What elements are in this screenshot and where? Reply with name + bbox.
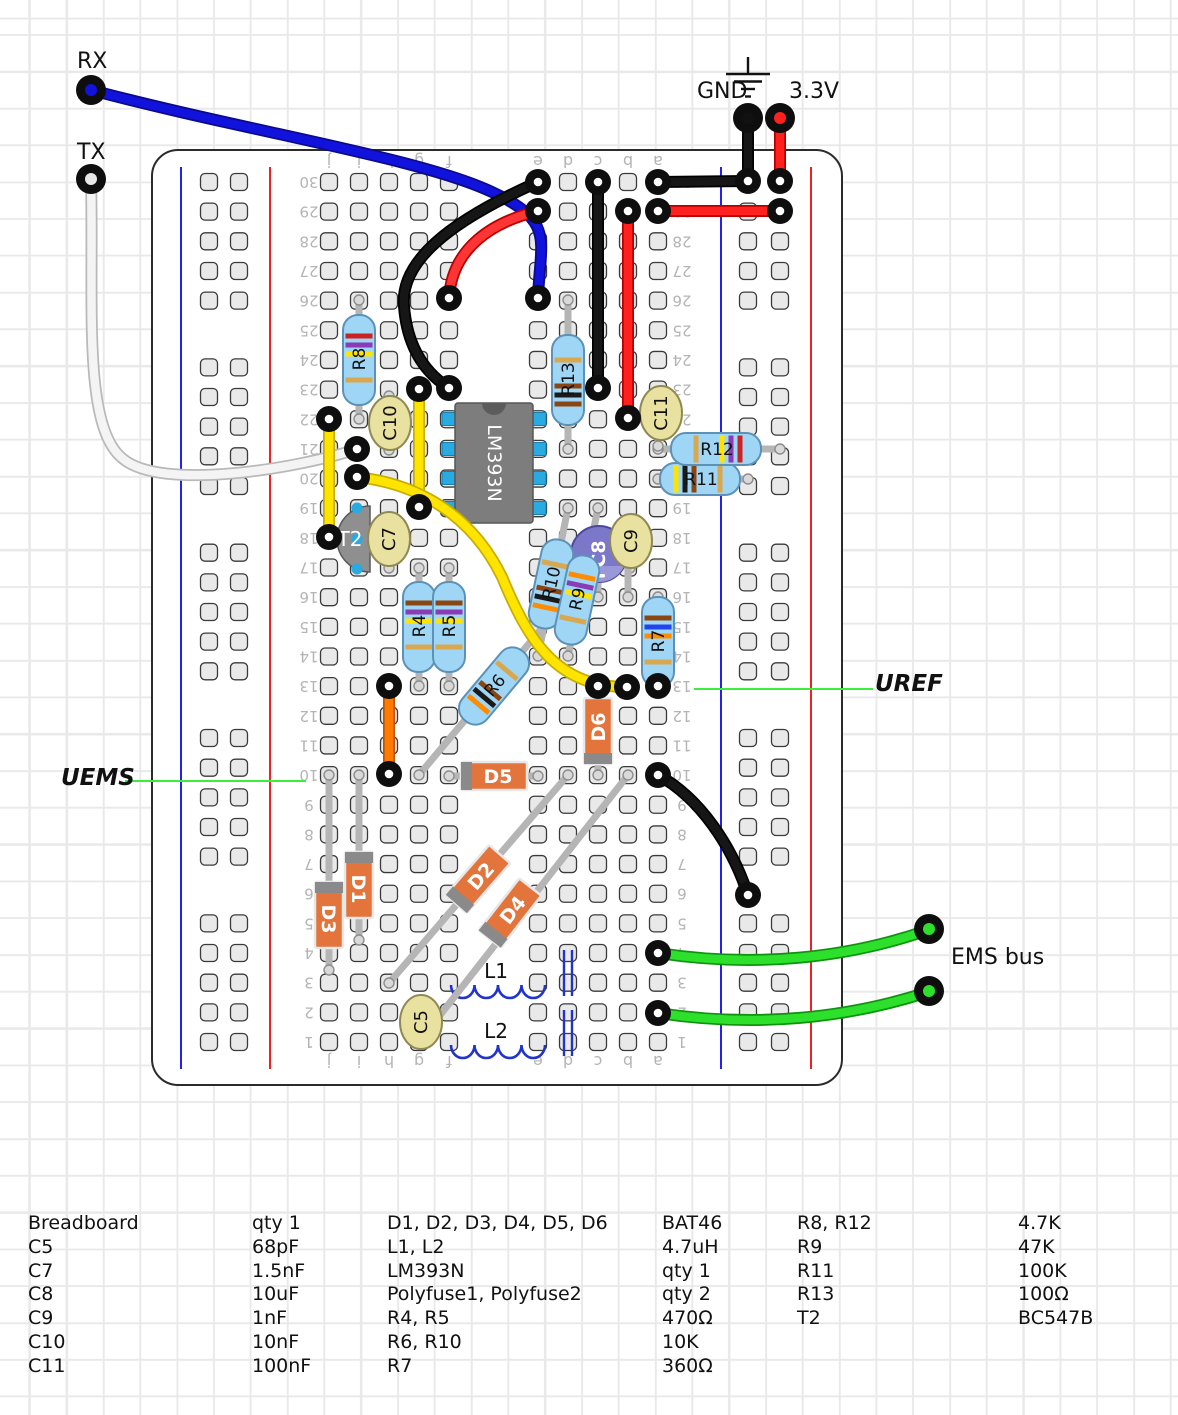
hole: [620, 915, 637, 932]
hole: [560, 915, 577, 932]
row-number-left: 20: [299, 470, 318, 488]
hole: [321, 381, 338, 398]
hole: [201, 945, 218, 962]
hole: [441, 1034, 458, 1051]
wire-end-ring: [436, 285, 462, 311]
parts-cell: BC547B: [1018, 1307, 1093, 1331]
row-number-left: 23: [299, 381, 318, 399]
hole: [201, 262, 218, 279]
row-number-left: 18: [299, 529, 318, 547]
parts-cell: qty 1: [662, 1260, 722, 1284]
hole: [321, 737, 338, 754]
parts-cell: 470Ω: [662, 1307, 722, 1331]
hole: [201, 1004, 218, 1021]
hole: [381, 203, 398, 220]
hole: [740, 262, 757, 279]
column-letter-top: b: [623, 152, 633, 171]
hole: [740, 818, 757, 835]
wire-end-ring: [436, 375, 462, 401]
hole: [560, 796, 577, 813]
row-number-left: 7: [304, 855, 314, 873]
component-c9: C9: [610, 514, 652, 568]
hole: [231, 233, 248, 250]
pin-33v: [765, 103, 795, 133]
svg-text:R11: R11: [684, 470, 717, 490]
hole: [351, 1004, 368, 1021]
row-number-left: 13: [299, 677, 318, 695]
hole: [351, 233, 368, 250]
wire-end-ring: [525, 285, 551, 311]
row-number-right: 27: [672, 262, 691, 280]
hole: [381, 915, 398, 932]
hole: [772, 544, 789, 561]
hole: [381, 262, 398, 279]
pin-rx: [76, 75, 106, 105]
wire-end-ring: [735, 882, 761, 908]
hole: [231, 1033, 248, 1050]
hole: [231, 262, 248, 279]
svg-text:R12: R12: [700, 440, 733, 460]
parts-list-column: D1, D2, D3, D4, D5, D6L1, L2LM393NPolyfu…: [387, 1212, 608, 1379]
component-d6: D6: [584, 698, 612, 764]
hole: [381, 1034, 398, 1051]
component-r12: R12: [671, 433, 761, 465]
hole: [590, 856, 607, 873]
hole: [201, 1033, 218, 1050]
parts-cell: 68pF: [252, 1236, 311, 1260]
hole: [740, 759, 757, 776]
row-number-right: 11: [672, 736, 691, 754]
hole: [351, 174, 368, 191]
hole: [231, 477, 248, 494]
svg-text:R13: R13: [559, 362, 579, 395]
hole: [650, 885, 667, 902]
hole: [772, 915, 789, 932]
hole: [620, 174, 637, 191]
parts-cell: [797, 1331, 872, 1355]
wire-gnd-row30: [658, 181, 748, 182]
hole: [772, 789, 789, 806]
parts-list-column: qty 168pF1.5nF10uF1nF10nF100nF: [252, 1212, 311, 1379]
row-number-right: 12: [672, 707, 691, 725]
hole: [201, 663, 218, 680]
hole: [772, 759, 789, 776]
hole: [381, 648, 398, 665]
svg-text:D6: D6: [588, 713, 610, 742]
hole: [560, 707, 577, 724]
hole: [381, 1004, 398, 1021]
hole: [231, 388, 248, 405]
hole: [590, 885, 607, 902]
wire-end-ring: [525, 169, 551, 195]
hole: [530, 322, 547, 339]
parts-cell: T2: [797, 1307, 872, 1331]
parts-cell: C7: [28, 1260, 139, 1284]
parts-cell: C10: [28, 1331, 139, 1355]
hole: [231, 848, 248, 865]
row-number-right: 5: [677, 914, 687, 932]
hole: [381, 174, 398, 191]
parts-list-column: 4.7K47K100K100ΩBC547B: [1018, 1212, 1093, 1379]
hole: [231, 603, 248, 620]
parts-cell: 1nF: [252, 1307, 311, 1331]
row-number-left: 4: [304, 944, 314, 962]
hole: [201, 203, 218, 220]
row-number-right: 3: [677, 974, 687, 992]
parts-cell: 100nF: [252, 1355, 311, 1379]
hole: [530, 1004, 547, 1021]
pin-tx: [76, 164, 106, 194]
row-number-left: 22: [299, 410, 318, 428]
hole: [351, 262, 368, 279]
hole: [381, 796, 398, 813]
hole: [530, 915, 547, 932]
column-letter-bottom: g: [414, 1052, 424, 1071]
hole: [772, 574, 789, 591]
hole: [772, 233, 789, 250]
hole: [650, 826, 667, 843]
hole: [740, 233, 757, 250]
pin-ems2: [914, 976, 944, 1006]
svg-text:C10: C10: [380, 405, 401, 440]
hole: [590, 826, 607, 843]
row-number-left: 17: [299, 559, 318, 577]
hole: [620, 707, 637, 724]
wire-end-ring: [585, 169, 611, 195]
label-l1: L1: [484, 959, 508, 983]
hole: [441, 796, 458, 813]
hole: [620, 470, 637, 487]
wire-end-ring: [645, 673, 671, 699]
svg-text:LM393N: LM393N: [483, 424, 505, 501]
row-number-right: 15: [672, 618, 691, 636]
svg-text:C5: C5: [411, 1010, 432, 1034]
hole: [620, 796, 637, 813]
hole: [201, 730, 218, 747]
hole: [231, 174, 248, 191]
wire-end-ring: [645, 940, 671, 966]
svg-text:D3: D3: [317, 905, 339, 934]
component-r4: R4: [403, 582, 435, 672]
column-letter-top: a: [653, 152, 663, 171]
hole: [231, 974, 248, 991]
parts-cell: qty 2: [662, 1283, 722, 1307]
hole: [772, 603, 789, 620]
hole: [381, 589, 398, 606]
hole: [231, 663, 248, 680]
hole: [321, 322, 338, 339]
fritzing-breadboard-diagram: jjiihhggffeeddccbbaa11223344556677889910…: [0, 0, 1178, 1415]
hole: [650, 500, 667, 517]
row-number-left: 3: [304, 974, 314, 992]
row-number-right: 18: [672, 529, 691, 547]
hole: [772, 818, 789, 835]
parts-cell: Breadboard: [28, 1212, 139, 1236]
parts-cell: 10nF: [252, 1331, 311, 1355]
hole: [231, 1004, 248, 1021]
parts-list-column: BreadboardC5C7C8C9C10C11: [28, 1212, 139, 1379]
hole: [530, 678, 547, 695]
hole: [231, 292, 248, 309]
hole: [321, 203, 338, 220]
wire-end-ring: [615, 198, 641, 224]
hole: [201, 448, 218, 465]
hole: [620, 440, 637, 457]
svg-text:R5: R5: [440, 615, 460, 638]
parts-cell: L1, L2: [387, 1236, 608, 1260]
hole: [351, 589, 368, 606]
component-r5: R5: [433, 582, 465, 672]
hole: [201, 233, 218, 250]
hole: [620, 885, 637, 902]
parts-list-column: R8, R12R9R11R13T2: [797, 1212, 872, 1379]
row-number-left: 19: [299, 499, 318, 517]
row-number-left: 5: [304, 914, 314, 932]
wire-end-ring: [615, 405, 641, 431]
hole: [231, 418, 248, 435]
hole: [650, 856, 667, 873]
parts-cell: 100Ω: [1018, 1283, 1093, 1307]
hole: [650, 292, 667, 309]
label-gnd: GND: [697, 79, 747, 104]
svg-text:C9: C9: [621, 529, 642, 553]
hole: [441, 826, 458, 843]
parts-cell: [797, 1355, 872, 1379]
hole: [321, 974, 338, 991]
column-letter-top: d: [563, 152, 573, 171]
svg-text:R8: R8: [350, 348, 370, 371]
hole: [772, 1033, 789, 1050]
hole: [411, 796, 428, 813]
hole: [560, 737, 577, 754]
hole: [530, 381, 547, 398]
hole: [590, 915, 607, 932]
component-d5: D5: [461, 762, 527, 790]
parts-cell: 360Ω: [662, 1355, 722, 1379]
row-number-left: 26: [299, 292, 318, 310]
hole: [351, 945, 368, 962]
hole: [772, 262, 789, 279]
hole: [590, 411, 607, 428]
hole: [411, 203, 428, 220]
hole: [620, 1004, 637, 1021]
hole: [231, 633, 248, 650]
component-c7: C7: [368, 512, 410, 566]
hole: [530, 529, 547, 546]
hole: [772, 418, 789, 435]
svg-text:C7: C7: [379, 527, 400, 551]
parts-cell: C5: [28, 1236, 139, 1260]
column-letter-top: c: [594, 152, 603, 171]
row-number-right: 17: [672, 559, 691, 577]
hole: [650, 974, 667, 991]
parts-cell: C11: [28, 1355, 139, 1379]
hole: [620, 618, 637, 635]
hole: [560, 1004, 577, 1021]
parts-cell: 100K: [1018, 1260, 1093, 1284]
hole: [201, 759, 218, 776]
row-number-left: 14: [299, 647, 318, 665]
hole: [411, 174, 428, 191]
hole: [321, 707, 338, 724]
hole: [231, 574, 248, 591]
hole: [231, 818, 248, 835]
hole: [650, 322, 667, 339]
label-3v3: 3.3V: [789, 79, 839, 104]
hole: [351, 648, 368, 665]
parts-cell: [1018, 1331, 1093, 1355]
hole: [530, 826, 547, 843]
hole: [411, 856, 428, 873]
hole: [560, 174, 577, 191]
row-number-right: 8: [677, 825, 687, 843]
svg-text:R7: R7: [649, 630, 669, 653]
hole: [411, 292, 428, 309]
hole: [590, 945, 607, 962]
component-r13: R13: [552, 335, 584, 425]
hole: [201, 359, 218, 376]
hole: [231, 789, 248, 806]
hole: [650, 707, 667, 724]
parts-cell: Polyfuse1, Polyfuse2: [387, 1283, 608, 1307]
hole: [772, 730, 789, 747]
wire-end-ring: [525, 198, 551, 224]
hole: [231, 544, 248, 561]
row-number-right: 28: [672, 232, 691, 250]
row-number-left: 8: [304, 825, 314, 843]
wire-end-ring: [645, 198, 671, 224]
hole: [411, 915, 428, 932]
parts-cell: 10K: [662, 1331, 722, 1355]
row-number-right: 14: [672, 647, 691, 665]
hole: [321, 1034, 338, 1051]
hole: [351, 618, 368, 635]
hole: [351, 203, 368, 220]
hole: [620, 856, 637, 873]
hole: [590, 974, 607, 991]
wire-end-ring: [376, 761, 402, 787]
hole: [231, 448, 248, 465]
svg-text:D5: D5: [484, 766, 513, 788]
hole: [620, 737, 637, 754]
hole: [620, 945, 637, 962]
row-number-right: 19: [672, 499, 691, 517]
hole: [772, 633, 789, 650]
wire-end-ring: [406, 376, 432, 402]
hole: [231, 915, 248, 932]
hole: [441, 322, 458, 339]
label-uref: UREF: [875, 671, 943, 697]
pin-ems1: [914, 914, 944, 944]
hole: [321, 618, 338, 635]
hole: [650, 559, 667, 576]
wire-end-ring: [767, 198, 793, 224]
hole: [650, 233, 667, 250]
hole: [740, 633, 757, 650]
pin-gnd: [733, 103, 763, 133]
hole: [740, 544, 757, 561]
hole: [351, 1034, 368, 1051]
label-ems-bus: EMS bus: [951, 945, 1044, 970]
hole: [381, 885, 398, 902]
row-number-left: 30: [299, 173, 318, 191]
hole: [740, 1033, 757, 1050]
parts-list-column: BAT464.7uHqty 1qty 2470Ω10K360Ω: [662, 1212, 722, 1379]
parts-cell: BAT46: [662, 1212, 722, 1236]
hole: [530, 351, 547, 368]
hole: [772, 292, 789, 309]
hole: [620, 826, 637, 843]
column-letter-top: e: [533, 152, 543, 171]
hole: [772, 359, 789, 376]
hole: [772, 477, 789, 494]
hole: [650, 262, 667, 279]
wire-end-ring: [767, 168, 793, 194]
hole: [590, 1034, 607, 1051]
component-d1: D1: [345, 852, 373, 918]
hole: [530, 945, 547, 962]
hole: [740, 574, 757, 591]
hole: [201, 418, 218, 435]
hole: [560, 974, 577, 991]
parts-cell: R8, R12: [797, 1212, 872, 1236]
hole: [740, 974, 757, 991]
hole: [620, 1034, 637, 1051]
hole: [740, 359, 757, 376]
row-number-right: 6: [677, 885, 687, 903]
row-number-left: 15: [299, 618, 318, 636]
hole: [650, 1034, 667, 1051]
svg-text:C11: C11: [651, 395, 672, 430]
component-lm393n: LM393N: [442, 403, 546, 523]
hole: [740, 848, 757, 865]
row-number-right: 13: [672, 677, 691, 695]
hole: [441, 203, 458, 220]
component-c11: C11: [640, 386, 682, 440]
hole: [321, 678, 338, 695]
hole: [560, 1034, 577, 1051]
label-l2: L2: [484, 1019, 508, 1043]
hole: [411, 529, 428, 546]
row-number-left: 28: [299, 232, 318, 250]
hole: [321, 262, 338, 279]
label-tx: TX: [77, 140, 106, 165]
hole: [201, 292, 218, 309]
hole: [201, 818, 218, 835]
row-number-left: 6: [304, 885, 314, 903]
hole: [321, 233, 338, 250]
hole: [381, 856, 398, 873]
component-c10: C10: [369, 396, 411, 450]
hole: [381, 351, 398, 368]
wire-end-ring: [585, 673, 611, 699]
parts-cell: R11: [797, 1260, 872, 1284]
hole: [560, 885, 577, 902]
hole: [351, 974, 368, 991]
row-number-left: 1: [304, 1033, 314, 1051]
hole: [620, 974, 637, 991]
parts-cell: 47K: [1018, 1236, 1093, 1260]
hole: [351, 707, 368, 724]
hole: [772, 974, 789, 991]
hole: [650, 737, 667, 754]
row-number-right: 24: [672, 351, 691, 369]
hole: [411, 885, 428, 902]
wire-end-ring: [614, 674, 640, 700]
hole: [590, 470, 607, 487]
hole: [740, 388, 757, 405]
hole: [231, 730, 248, 747]
